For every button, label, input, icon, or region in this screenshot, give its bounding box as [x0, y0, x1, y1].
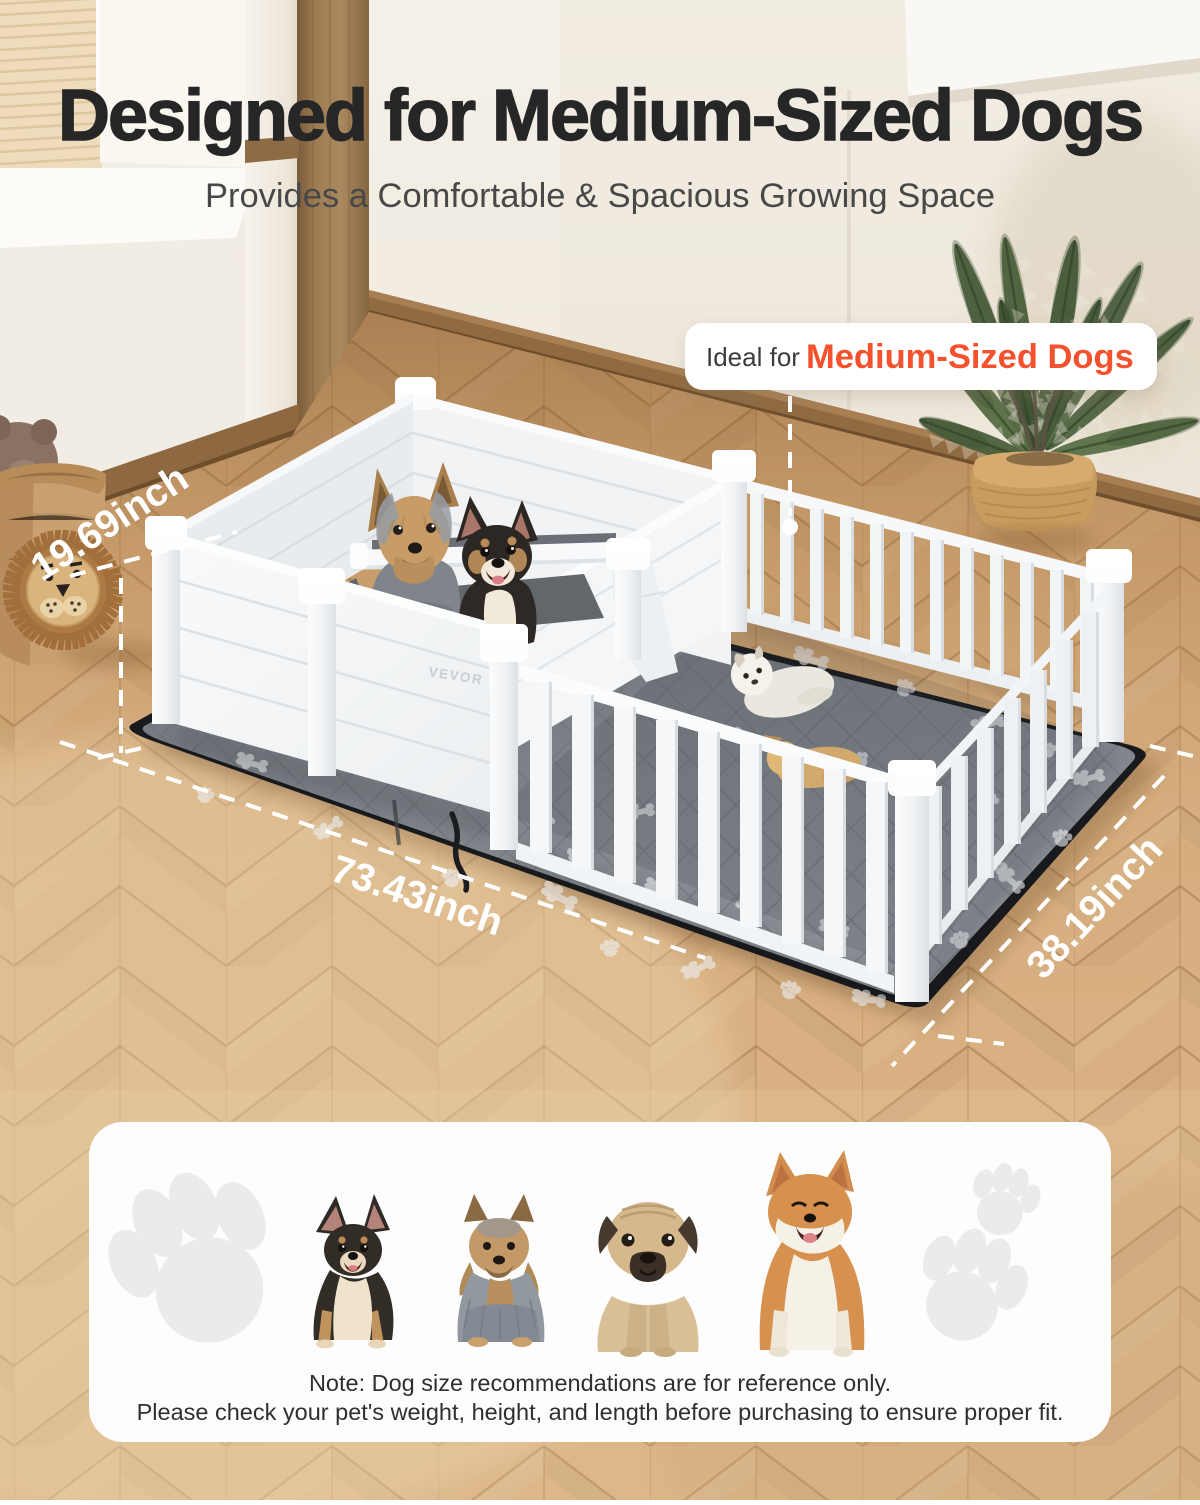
svg-text:Designed for Medium-Sized Dogs: Designed for Medium-Sized Dogs	[58, 76, 1142, 156]
svg-text:Please check your pet's weight: Please check your pet's weight, height, …	[137, 1399, 1064, 1425]
svg-text:Ideal for: Ideal for	[706, 342, 800, 372]
svg-text:Medium-Sized Dogs: Medium-Sized Dogs	[806, 338, 1134, 376]
svg-text:Provides a Comfortable & Spaci: Provides a Comfortable & Spacious Growin…	[205, 177, 995, 215]
svg-text:Note: Dog size recommendations: Note: Dog size recommendations are for r…	[309, 1370, 891, 1396]
